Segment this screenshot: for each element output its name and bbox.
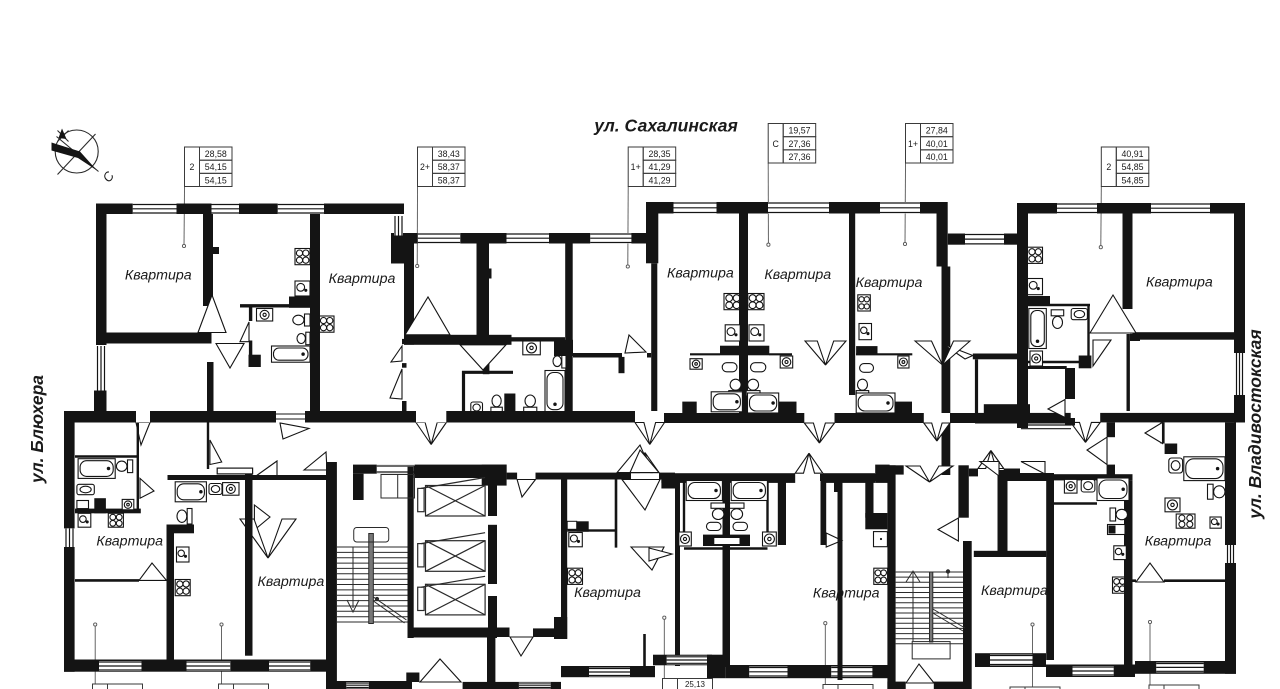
svg-text:Квартира: Квартира [96,533,163,549]
svg-text:2: 2 [1106,162,1111,172]
svg-text:40,91: 40,91 [1121,149,1143,159]
svg-text:40,01: 40,01 [926,152,948,162]
svg-text:54,85: 54,85 [1121,162,1143,172]
svg-text:28,58: 28,58 [205,149,227,159]
svg-text:Квартира: Квартира [125,268,192,284]
svg-text:1+: 1+ [631,162,641,172]
svg-text:27,36: 27,36 [788,152,810,162]
svg-text:Квартира: Квартира [856,275,923,291]
svg-text:1+: 1+ [908,139,918,149]
svg-text:Квартира: Квартира [329,271,396,287]
svg-text:Квартира: Квартира [981,583,1048,599]
svg-text:54,85: 54,85 [1121,175,1143,185]
svg-text:41,29: 41,29 [648,162,670,172]
svg-text:Квартира: Квартира [1146,274,1213,290]
svg-text:28,35: 28,35 [648,149,670,159]
svg-text:С: С [773,139,780,149]
svg-text:25,13: 25,13 [685,680,706,689]
svg-text:ул. Блюхера: ул. Блюхера [27,375,47,484]
svg-text:2+: 2+ [420,162,430,172]
svg-text:Квартира: Квартира [1145,534,1212,550]
svg-text:58,37: 58,37 [438,175,460,185]
svg-text:ул. Сахалинская: ул. Сахалинская [593,116,738,136]
svg-text:27,36: 27,36 [788,139,810,149]
svg-text:54,15: 54,15 [205,175,227,185]
svg-text:19,57: 19,57 [788,126,810,136]
svg-text:58,37: 58,37 [438,162,460,172]
svg-text:Квартира: Квартира [667,266,734,282]
svg-text:54,15: 54,15 [205,162,227,172]
svg-text:41,29: 41,29 [648,175,670,185]
svg-text:Квартира: Квартира [813,585,880,601]
svg-text:Квартира: Квартира [574,585,641,601]
svg-text:Квартира: Квартира [258,574,325,590]
svg-text:ул. Владивостокская: ул. Владивостокская [1245,329,1265,519]
svg-text:40,01: 40,01 [926,139,948,149]
svg-text:27,84: 27,84 [926,126,948,136]
svg-text:Квартира: Квартира [764,267,831,283]
svg-text:38,43: 38,43 [438,149,460,159]
svg-text:2: 2 [190,162,195,172]
